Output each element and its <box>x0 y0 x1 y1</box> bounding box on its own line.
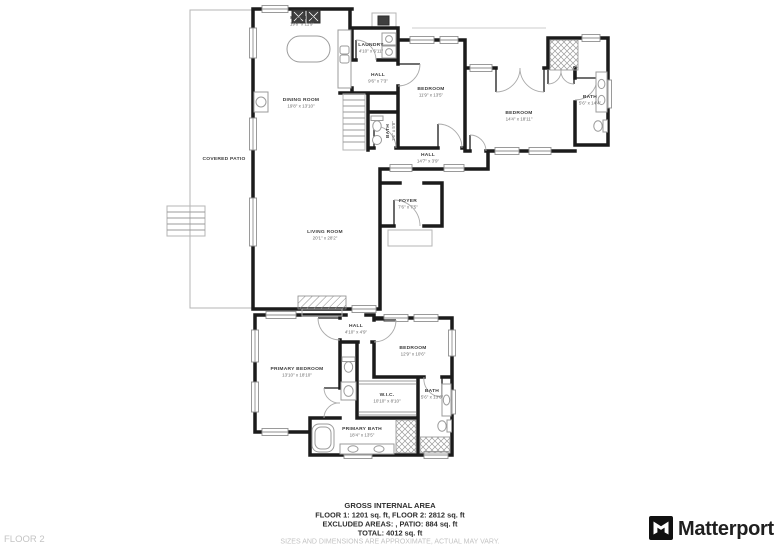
svg-text:BATH: BATH <box>425 388 439 394</box>
shower-icon <box>550 40 578 70</box>
svg-text:BEDROOM: BEDROOM <box>417 86 444 92</box>
svg-text:14'4" x 18'11": 14'4" x 18'11" <box>506 117 533 122</box>
entry-porch <box>388 230 432 246</box>
total-area-line: TOTAL: 4012 sq. ft <box>358 529 423 538</box>
staircase <box>343 94 365 150</box>
svg-text:LIVING ROOM: LIVING ROOM <box>307 229 343 235</box>
floor-plan-page: KITCHEN 19'8" x 11'9" DINING ROOM 19'8" … <box>0 0 780 545</box>
matterport-logo-text: Matterport <box>678 518 775 540</box>
room-label-wic: W.I.C. 10'10" x 8'10" <box>373 392 401 404</box>
svg-text:3'6" x 5'8": 3'6" x 5'8" <box>391 121 396 141</box>
room-label-bath-3: BATH 5'6" x 13'6" <box>421 388 444 400</box>
svg-text:9'6" x 7'3": 9'6" x 7'3" <box>368 79 388 84</box>
room-label-laundry: LAUNDRY 4'10" x 6'11" <box>358 42 384 54</box>
toilet-icon <box>371 116 383 121</box>
excluded-areas-line: EXCLUDED AREAS: , PATIO: 884 sq. ft <box>323 520 458 529</box>
toilet-icon <box>447 420 452 432</box>
svg-text:11'9" x 13'5": 11'9" x 13'5" <box>419 93 444 98</box>
room-label-bath-powder: BATH 3'6" x 5'8" <box>385 121 396 141</box>
sink-icon <box>373 136 382 145</box>
svg-text:HALL: HALL <box>371 72 385 78</box>
room-label-bedroom-4: BEDROOM 12'9" x 10'6" <box>399 345 426 357</box>
room-label-covered-patio: COVERED PATIO <box>202 156 245 162</box>
floor-plan-canvas: KITCHEN 19'8" x 11'9" DINING ROOM 19'8" … <box>0 0 780 545</box>
room-label-bedroom-2: BEDROOM 11'9" x 13'5" <box>417 86 444 98</box>
svg-text:FOYER: FOYER <box>399 198 417 204</box>
svg-text:19'8" x 13'10": 19'8" x 13'10" <box>287 104 315 109</box>
powder-bath-fixtures <box>371 116 383 145</box>
svg-text:HALL: HALL <box>421 152 435 158</box>
toilet-icon <box>603 120 608 132</box>
disclaimer-text: SIZES AND DIMENSIONS ARE APPROXIMATE, AC… <box>280 539 499 545</box>
svg-text:7'6" x 7'5": 7'6" x 7'5" <box>398 205 418 210</box>
kitchen-sink <box>340 46 349 54</box>
patio-steps <box>167 206 205 236</box>
svg-text:PRIMARY BATH: PRIMARY BATH <box>342 426 382 432</box>
doors <box>318 40 597 418</box>
svg-text:BEDROOM: BEDROOM <box>505 110 532 116</box>
gross-internal-area-title: GROSS INTERNAL AREA <box>344 501 436 510</box>
fireplace <box>298 296 346 316</box>
floor-label: FLOOR 2 <box>4 534 45 545</box>
matterport-logo: Matterport <box>649 516 775 540</box>
shower-icon <box>396 420 416 453</box>
shower-icon <box>420 437 450 453</box>
area-summary: GROSS INTERNAL AREA FLOOR 1: 1201 sq. ft… <box>280 501 499 545</box>
svg-text:4'10" x 4'9": 4'10" x 4'9" <box>345 330 368 335</box>
svg-text:DINING ROOM: DINING ROOM <box>283 97 319 103</box>
svg-text:5'6" x 13'6": 5'6" x 13'6" <box>421 395 444 400</box>
vanity-counter <box>596 72 607 112</box>
svg-text:BEDROOM: BEDROOM <box>399 345 426 351</box>
svg-text:18'4" x 13'5": 18'4" x 13'5" <box>350 433 375 438</box>
room-label-kitchen: KITCHEN 19'8" x 11'9" <box>290 15 315 27</box>
svg-text:10'10" x 8'10": 10'10" x 8'10" <box>373 399 401 404</box>
room-label-foyer: FOYER 7'6" x 7'5" <box>398 198 418 210</box>
svg-text:PRIMARY BEDROOM: PRIMARY BEDROOM <box>271 366 324 372</box>
svg-text:19'8" x 11'9": 19'8" x 11'9" <box>290 22 315 27</box>
svg-text:W.I.C.: W.I.C. <box>380 392 395 398</box>
floor-areas-line: FLOOR 1: 1201 sq. ft, FLOOR 2: 2812 sq. … <box>315 511 465 520</box>
utility-box <box>372 13 396 28</box>
svg-text:KITCHEN: KITCHEN <box>290 15 314 21</box>
room-label-dining-room: DINING ROOM 19'8" x 13'10" <box>283 97 319 109</box>
svg-text:BATH: BATH <box>583 94 597 100</box>
svg-text:12'9" x 10'6": 12'9" x 10'6" <box>401 352 426 357</box>
room-label-primary-bath: PRIMARY BATH 18'4" x 13'5" <box>342 426 382 438</box>
svg-text:14'7" x 3'9": 14'7" x 3'9" <box>417 159 440 164</box>
svg-text:13'10" x 18'10": 13'10" x 18'10" <box>282 373 312 378</box>
svg-text:5'6" x 14'4": 5'6" x 14'4" <box>579 101 602 106</box>
kitchen-island <box>287 36 330 62</box>
room-label-bedroom-3: BEDROOM 14'4" x 18'11" <box>505 110 532 122</box>
svg-text:20'1" x 28'2": 20'1" x 28'2" <box>313 236 338 241</box>
laundry-fixtures <box>382 33 396 58</box>
primary-bath-fixtures <box>312 357 416 454</box>
svg-text:4'10" x 6'11": 4'10" x 6'11" <box>359 49 384 54</box>
room-label-primary-bedroom: PRIMARY BEDROOM 13'10" x 18'10" <box>271 366 324 378</box>
svg-text:HALL: HALL <box>349 323 363 329</box>
bath2-fixtures <box>550 40 608 132</box>
room-label-hall-upper: HALL 9'6" x 7'3" <box>368 72 388 84</box>
room-label-hall-lower: HALL 4'10" x 4'9" <box>345 323 368 335</box>
room-label-living-room: LIVING ROOM 20'1" x 28'2" <box>307 229 343 241</box>
svg-text:COVERED PATIO: COVERED PATIO <box>202 156 245 162</box>
room-label-hall-middle: HALL 14'7" x 3'9" <box>417 152 440 164</box>
svg-text:LAUNDRY: LAUNDRY <box>358 42 384 48</box>
toilet-icon <box>342 357 355 362</box>
